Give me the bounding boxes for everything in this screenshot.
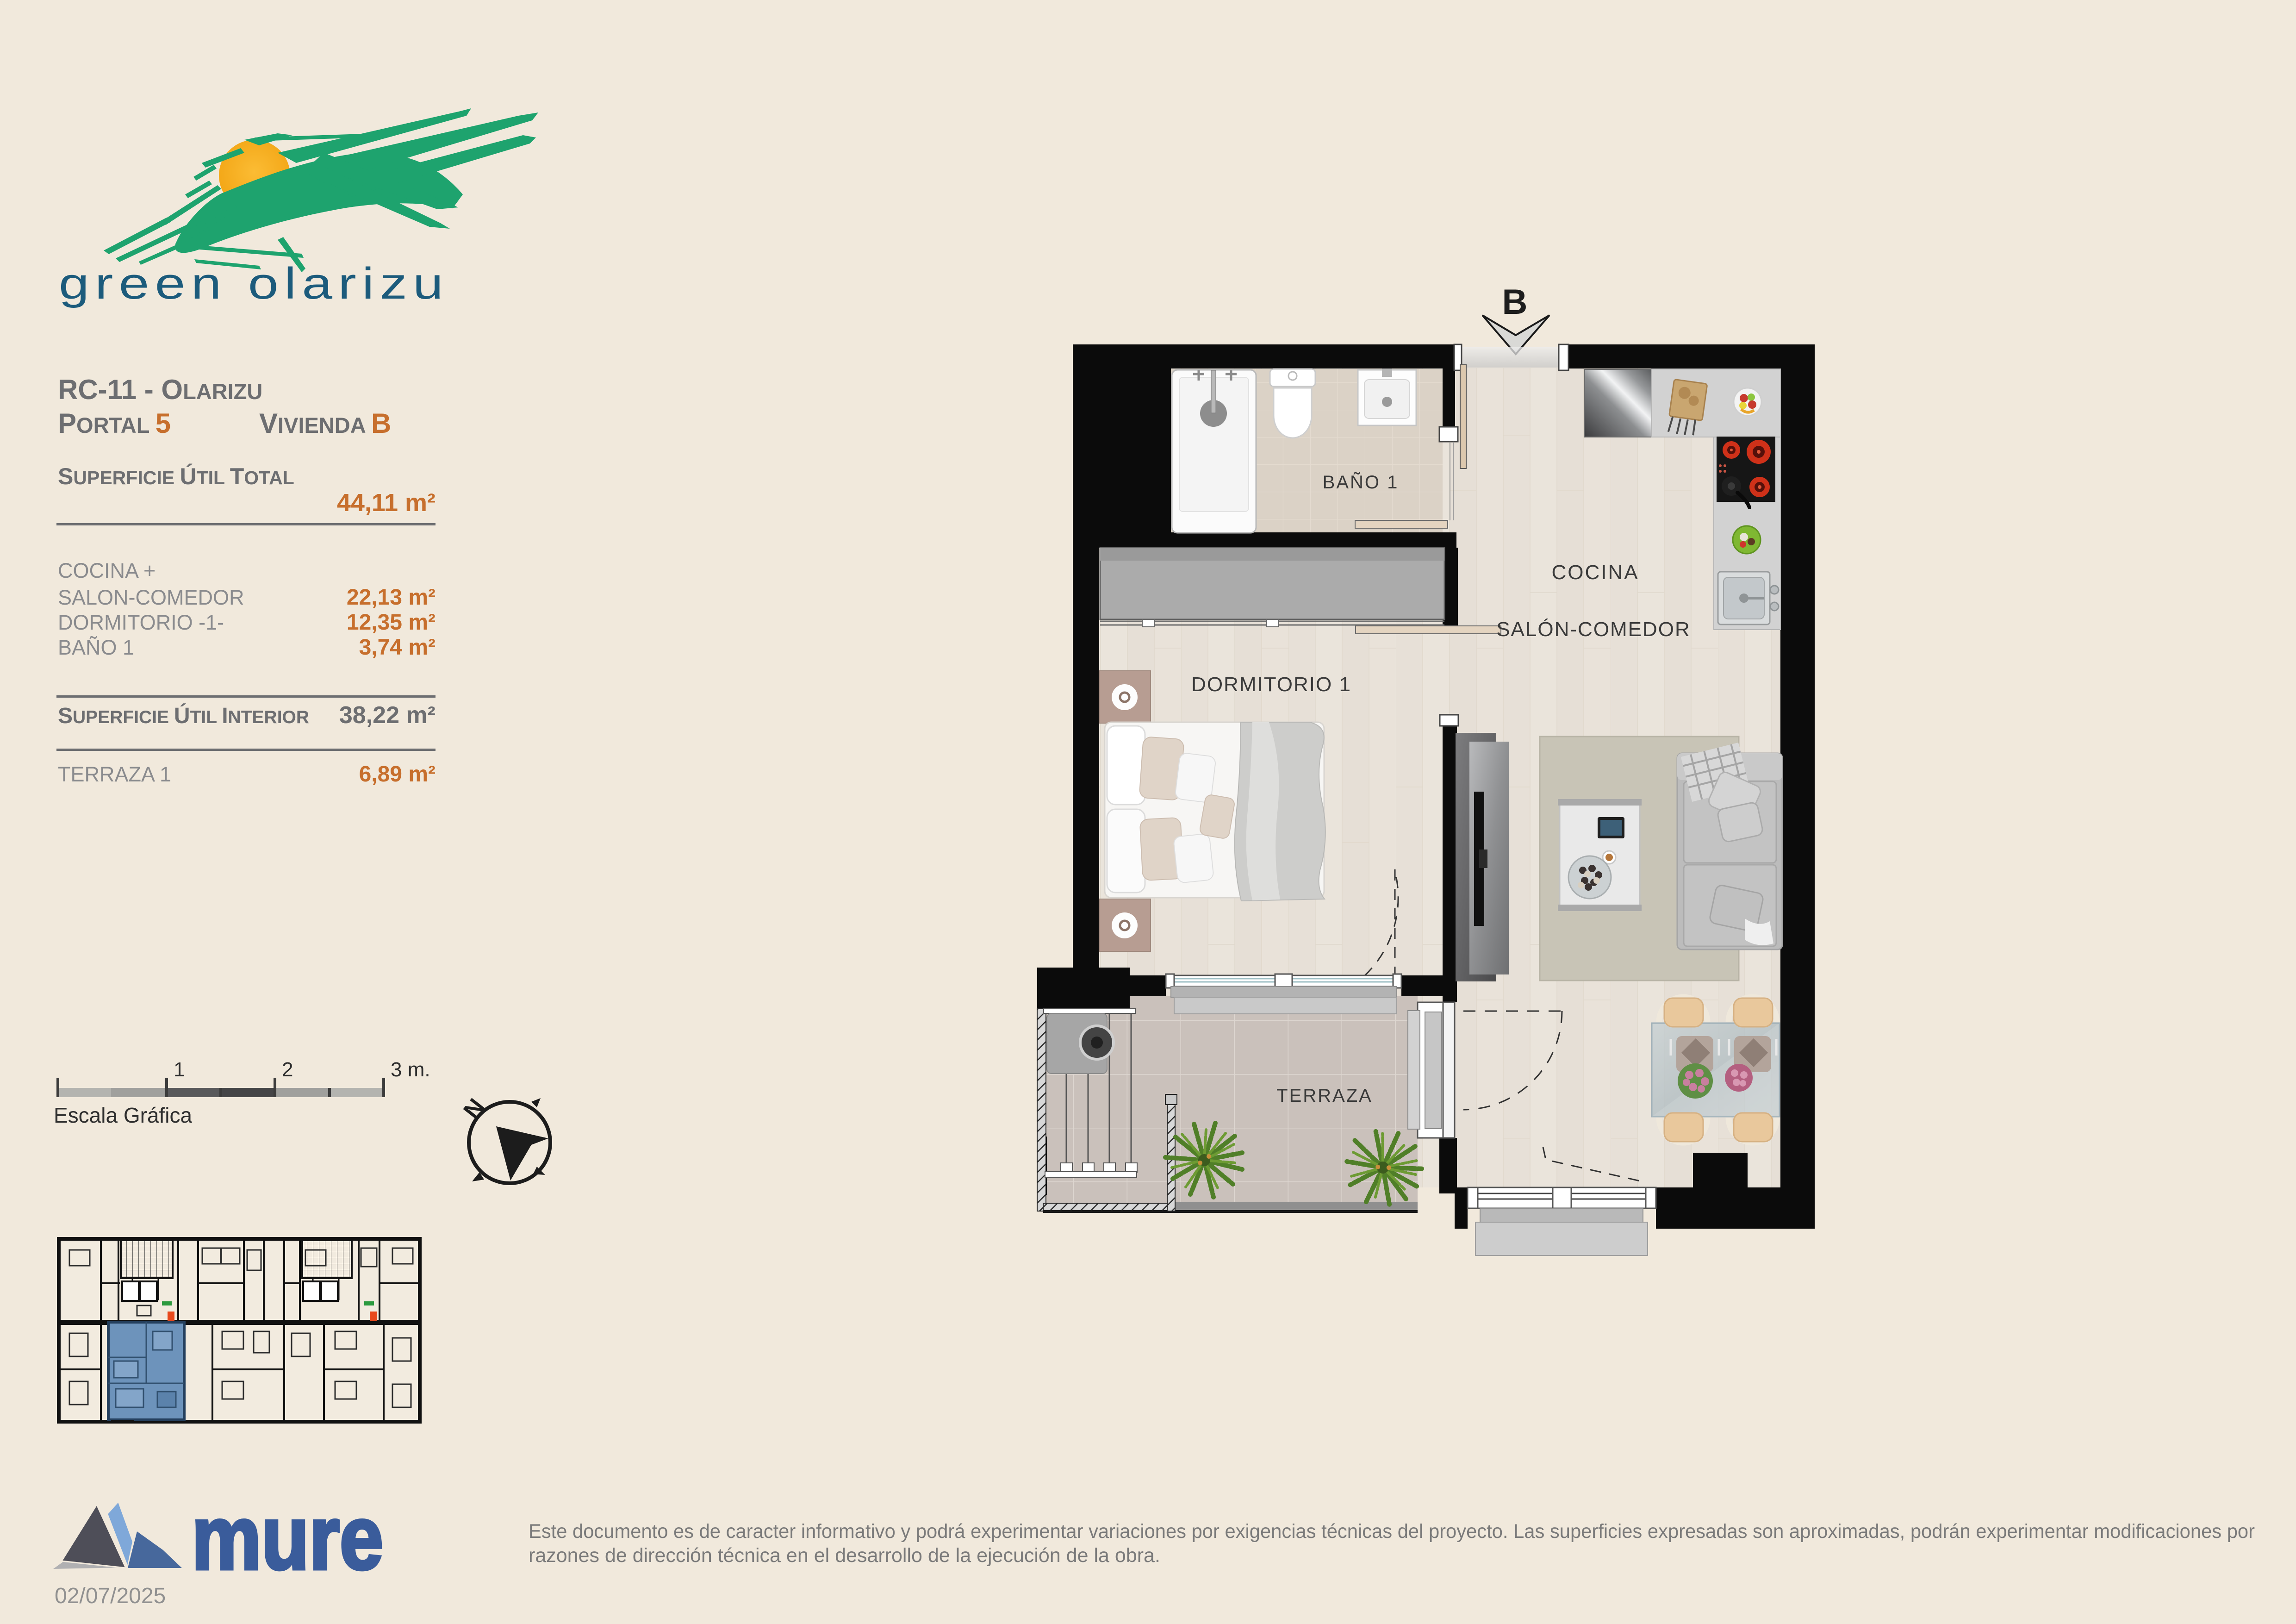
svg-text:44,11 m²: 44,11 m²: [337, 489, 436, 517]
svg-text:razones de dirección técnica e: razones de dirección técnica en el desar…: [529, 1544, 1160, 1567]
svg-text:38,22 m²: 38,22 m²: [339, 702, 436, 729]
svg-text:COCINA: COCINA: [1551, 561, 1639, 584]
svg-text:SALÓN-COMEDOR: SALÓN-COMEDOR: [1496, 618, 1691, 641]
svg-text:B: B: [1502, 282, 1528, 322]
svg-text:02/07/2025: 02/07/2025: [55, 1584, 166, 1608]
svg-text:BAÑO 1: BAÑO 1: [58, 636, 134, 659]
svg-text:PORTAL 5: PORTAL 5: [58, 408, 171, 439]
svg-text:Este documento es de caracter: Este documento es de caracter informativ…: [529, 1520, 2255, 1543]
svg-text:SALON-COMEDOR: SALON-COMEDOR: [58, 586, 244, 609]
svg-text:mure: mure: [192, 1487, 383, 1588]
svg-text:DORMITORIO 1: DORMITORIO 1: [1191, 673, 1351, 696]
svg-text:RC-11 - OLARIZU: RC-11 - OLARIZU: [58, 374, 262, 405]
svg-text:VIVIENDA B: VIVIENDA B: [259, 408, 391, 439]
svg-text:3,74 m²: 3,74 m²: [359, 635, 436, 660]
svg-text:6,89 m²: 6,89 m²: [359, 762, 436, 787]
svg-text:2: 2: [282, 1058, 293, 1081]
svg-text:SUPERFICIE ÚTIL TOTAL: SUPERFICIE ÚTIL TOTAL: [58, 463, 294, 489]
svg-text:COCINA +: COCINA +: [58, 559, 156, 582]
svg-text:12,35 m²: 12,35 m²: [347, 610, 436, 635]
svg-text:DORMITORIO -1-: DORMITORIO -1-: [58, 611, 224, 634]
svg-text:22,13 m²: 22,13 m²: [347, 585, 436, 610]
svg-text:green olarizu: green olarizu: [59, 259, 449, 308]
svg-text:TERRAZA: TERRAZA: [1276, 1086, 1373, 1106]
svg-text:BAÑO 1: BAÑO 1: [1323, 472, 1399, 493]
svg-text:TERRAZA 1: TERRAZA 1: [58, 762, 171, 786]
svg-text:Escala Gráfica: Escala Gráfica: [54, 1103, 193, 1127]
svg-text:1: 1: [174, 1058, 185, 1081]
svg-text:3 m.: 3 m.: [391, 1058, 430, 1081]
